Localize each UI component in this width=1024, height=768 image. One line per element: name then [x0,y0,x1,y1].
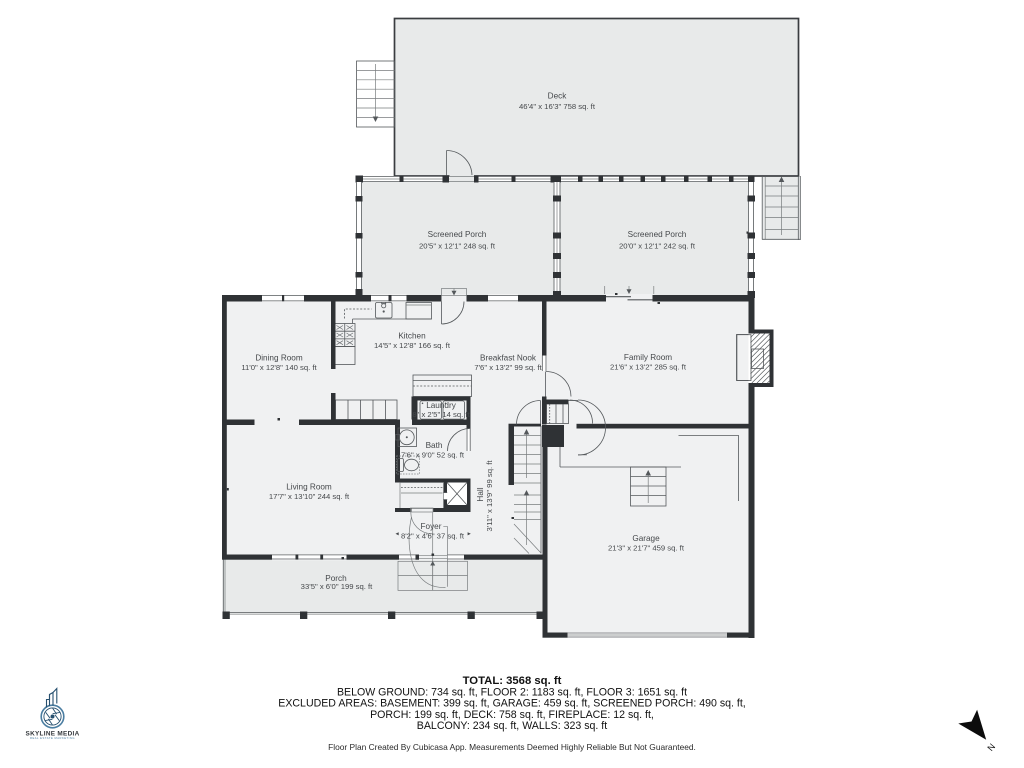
svg-text:3'11" x 13'9" 99 sq. ft: 3'11" x 13'9" 99 sq. ft [485,460,494,532]
svg-text:7'6" x 9'0" 52 sq. ft: 7'6" x 9'0" 52 sq. ft [401,451,465,460]
svg-text:Deck: Deck [548,92,568,101]
svg-text:11'0" x 12'8" 140 sq. ft: 11'0" x 12'8" 140 sq. ft [241,363,317,372]
svg-text:EXCLUDED AREAS: BASEMENT: 399: EXCLUDED AREAS: BASEMENT: 399 sq. ft, GA… [278,698,745,710]
svg-text:PORCH: 199 sq. ft, DECK: 758 s: PORCH: 199 sq. ft, DECK: 758 sq. ft, FIR… [370,709,654,721]
svg-text:BALCONY: 234 sq. ft, WALLS: 32: BALCONY: 234 sq. ft, WALLS: 323 sq. ft [417,720,607,732]
svg-text:Garage: Garage [632,534,660,543]
svg-text:Living Room: Living Room [286,483,332,492]
svg-text:Bath: Bath [426,441,443,450]
svg-text:Screened Porch: Screened Porch [628,230,687,239]
svg-text:Laundry: Laundry [426,401,456,410]
svg-text:14'5" x 12'8" 166 sq. ft: 14'5" x 12'8" 166 sq. ft [374,341,451,350]
svg-text:7'6" x 13'2" 99 sq. ft: 7'6" x 13'2" 99 sq. ft [474,363,542,372]
svg-text:TOTAL: 3568 sq. ft: TOTAL: 3568 sq. ft [463,675,562,687]
svg-text:21'6" x 13'2" 285 sq. ft: 21'6" x 13'2" 285 sq. ft [610,363,687,372]
svg-text:20'0" x 12'1" 242 sq. ft: 20'0" x 12'1" 242 sq. ft [619,242,696,251]
svg-text:Family Room: Family Room [624,353,672,362]
svg-text:20'5" x 12'1" 248 sq. ft: 20'5" x 12'1" 248 sq. ft [419,242,496,251]
svg-text:8" x 2'5" 14 sq. ft: 8" x 2'5" 14 sq. ft [412,410,470,419]
svg-text:Kitchen: Kitchen [398,332,426,341]
svg-text:Foyer: Foyer [421,522,442,531]
svg-text:REAL ESTATE MARKETING: REAL ESTATE MARKETING [30,736,75,740]
svg-text:33'5" x 6'0" 199 sq. ft: 33'5" x 6'0" 199 sq. ft [301,582,374,591]
svg-text:8'2" x 4'6" 37 sq. ft: 8'2" x 4'6" 37 sq. ft [401,532,465,541]
svg-text:Breakfast Nook: Breakfast Nook [480,354,537,363]
svg-text:Screened Porch: Screened Porch [428,230,487,239]
svg-text:21'3" x 21'7" 459 sq. ft: 21'3" x 21'7" 459 sq. ft [608,544,685,553]
svg-text:Hall: Hall [476,487,485,501]
svg-text:Floor Plan Created By Cubicasa: Floor Plan Created By Cubicasa App. Meas… [328,742,696,752]
svg-text:17'7" x 13'10" 244 sq. ft: 17'7" x 13'10" 244 sq. ft [269,492,350,501]
svg-text:BELOW GROUND: 734 sq. ft, FLOO: BELOW GROUND: 734 sq. ft, FLOOR 2: 1183 … [337,687,687,699]
svg-text:Dining Room: Dining Room [255,354,303,363]
svg-text:46'4" x 16'3" 758 sq. ft: 46'4" x 16'3" 758 sq. ft [519,102,596,111]
